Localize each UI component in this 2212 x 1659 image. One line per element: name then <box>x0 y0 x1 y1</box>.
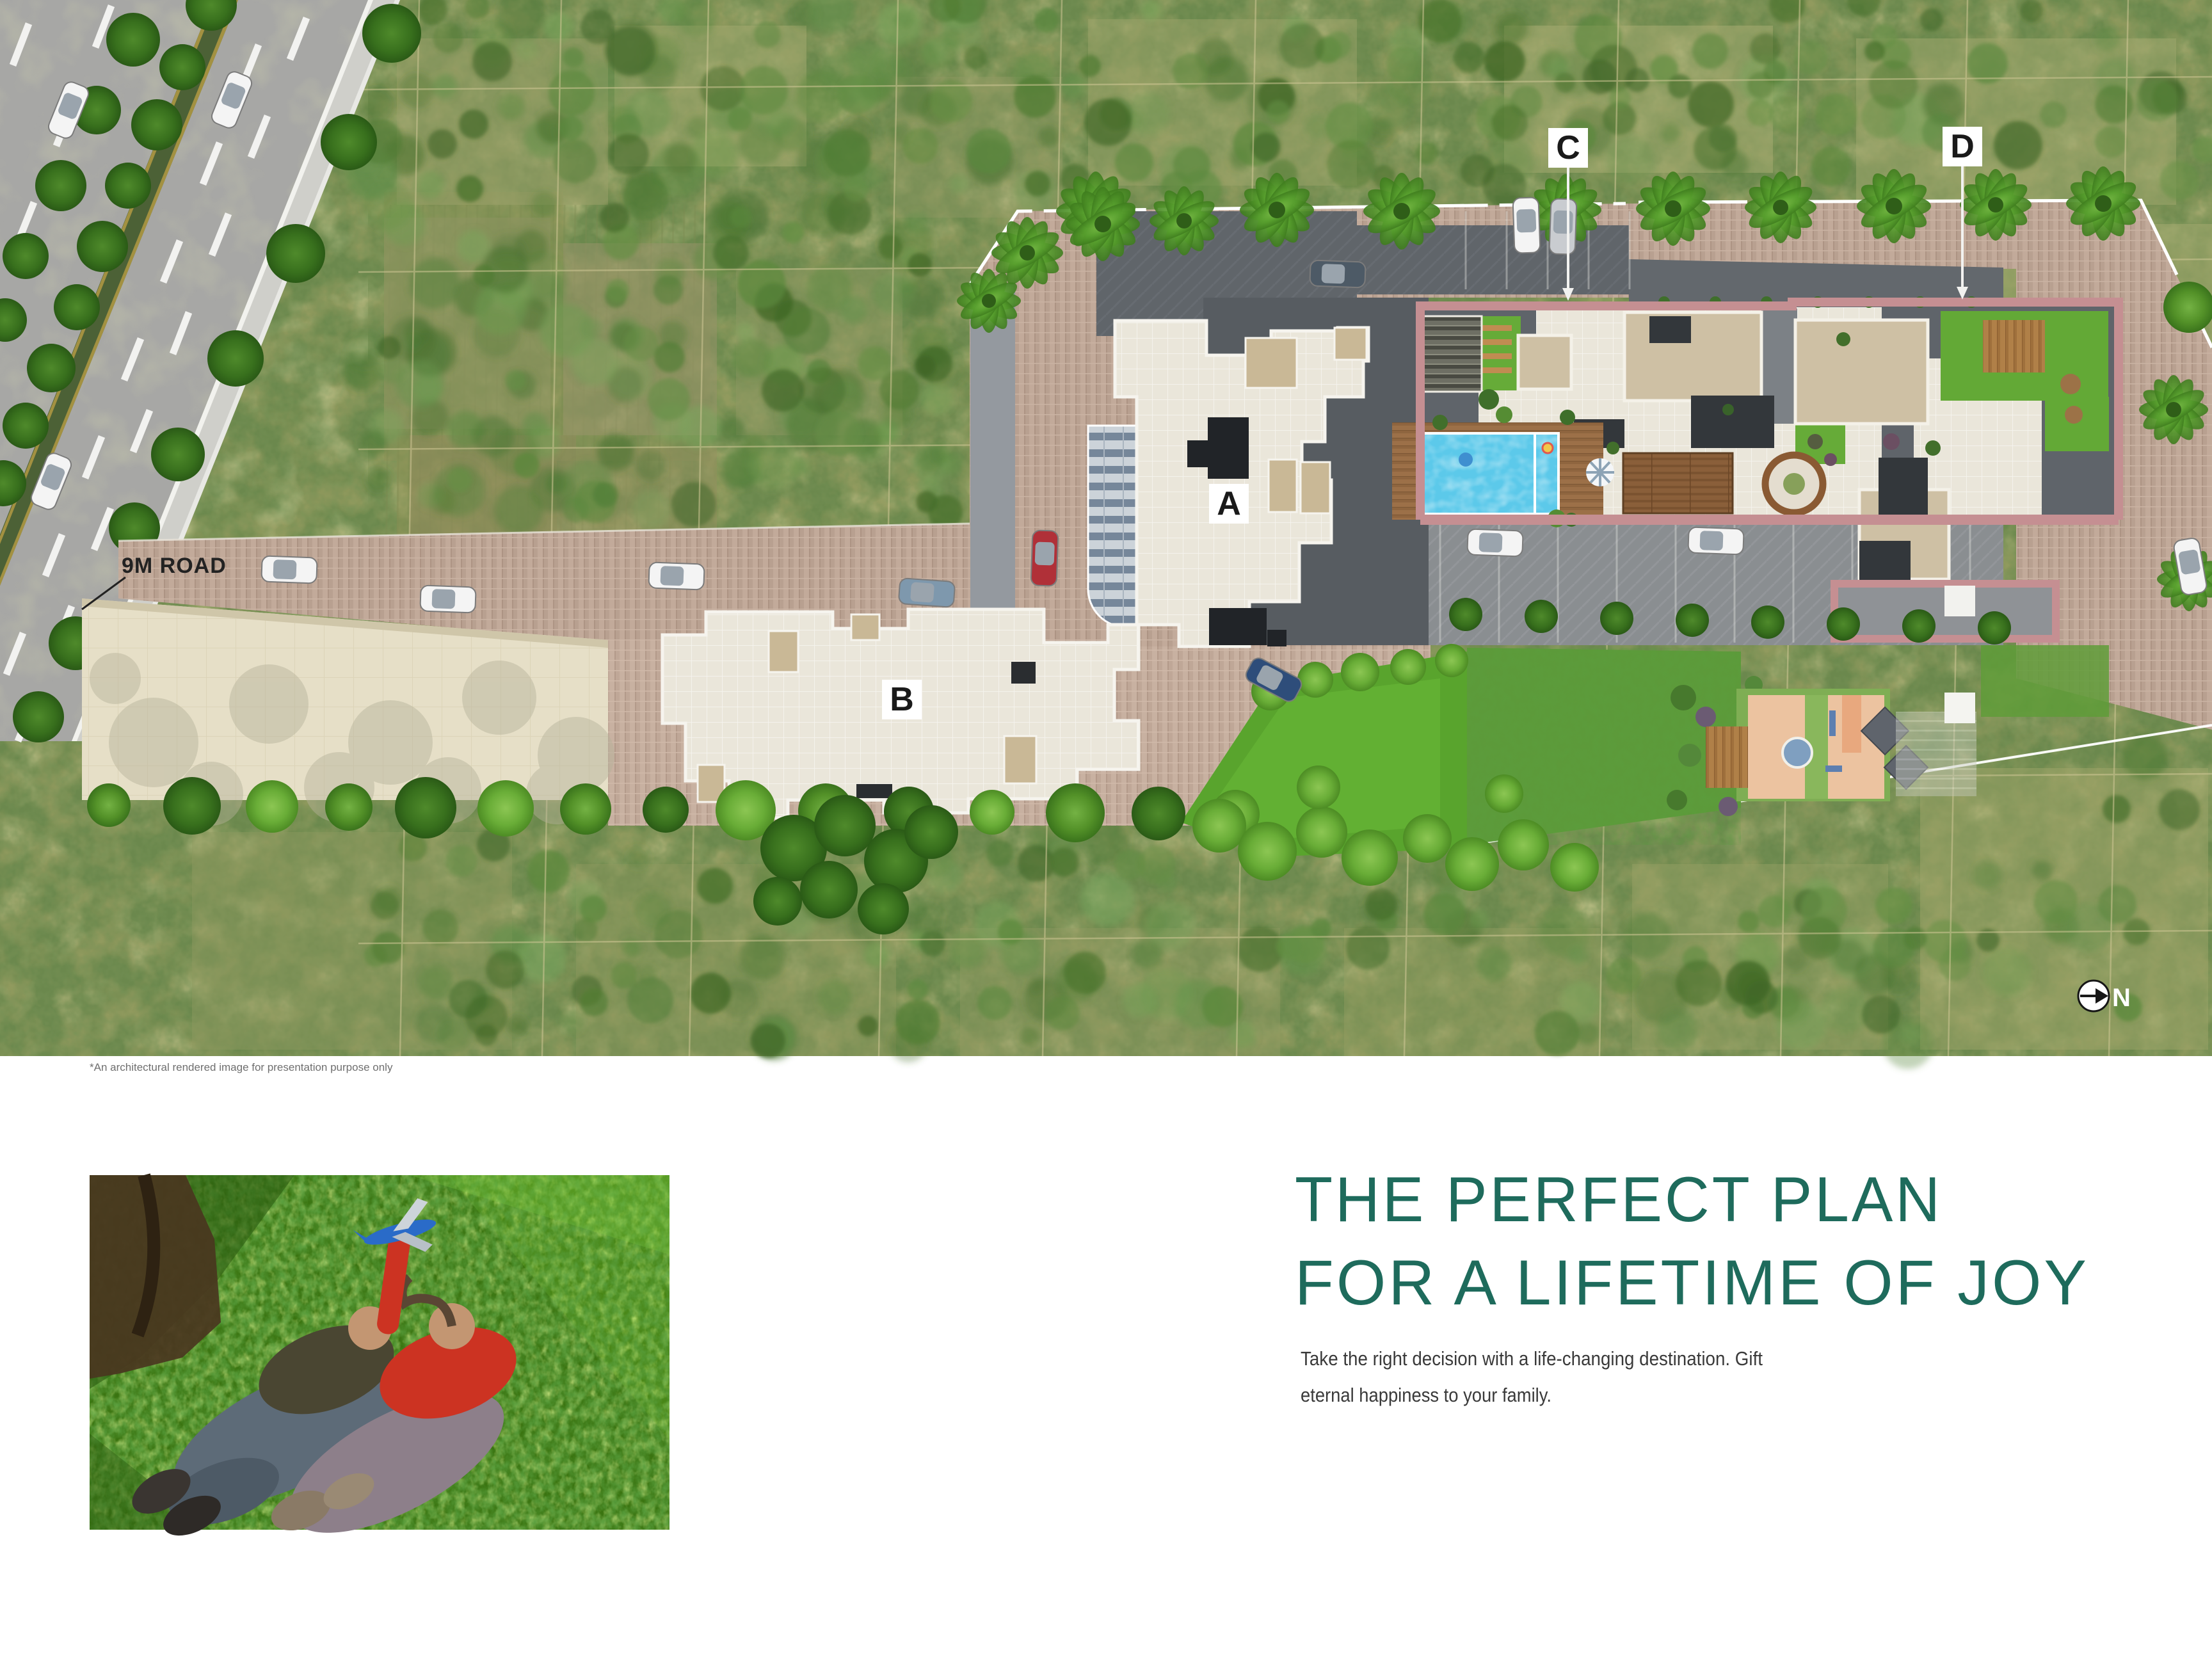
svg-text:FOR A LIFETIME OF JOY: FOR A LIFETIME OF JOY <box>1295 1247 2089 1318</box>
svg-text:THE PERFECT PLAN: THE PERFECT PLAN <box>1295 1164 1943 1235</box>
svg-text:N: N <box>2112 984 2131 1012</box>
svg-text:eternal happiness to your fami: eternal happiness to your family. <box>1301 1384 1551 1406</box>
svg-text:A: A <box>1217 485 1241 522</box>
svg-text:Take the right decision with a: Take the right decision with a life-chan… <box>1301 1347 1763 1370</box>
svg-text:D: D <box>1950 128 1975 165</box>
svg-text:B: B <box>890 681 914 718</box>
svg-text:9M ROAD: 9M ROAD <box>122 554 227 578</box>
svg-text:C: C <box>1556 129 1580 166</box>
svg-text:*An architectural rendered ima: *An architectural rendered image for pre… <box>90 1061 393 1073</box>
